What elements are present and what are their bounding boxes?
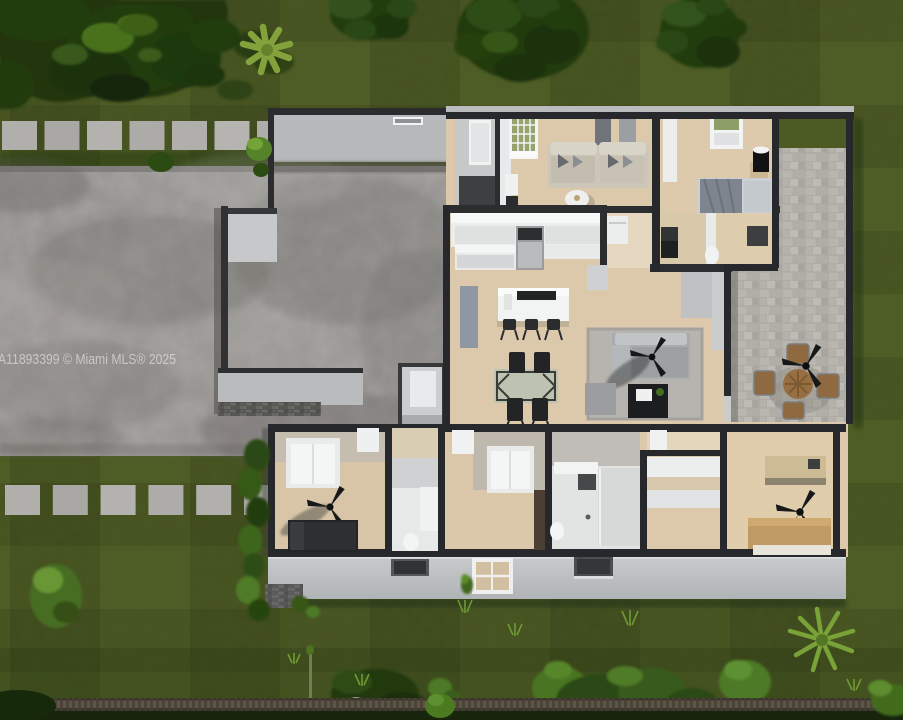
svg-text:A11893399 © Miami MLS® 2025: A11893399 © Miami MLS® 2025: [0, 351, 176, 368]
